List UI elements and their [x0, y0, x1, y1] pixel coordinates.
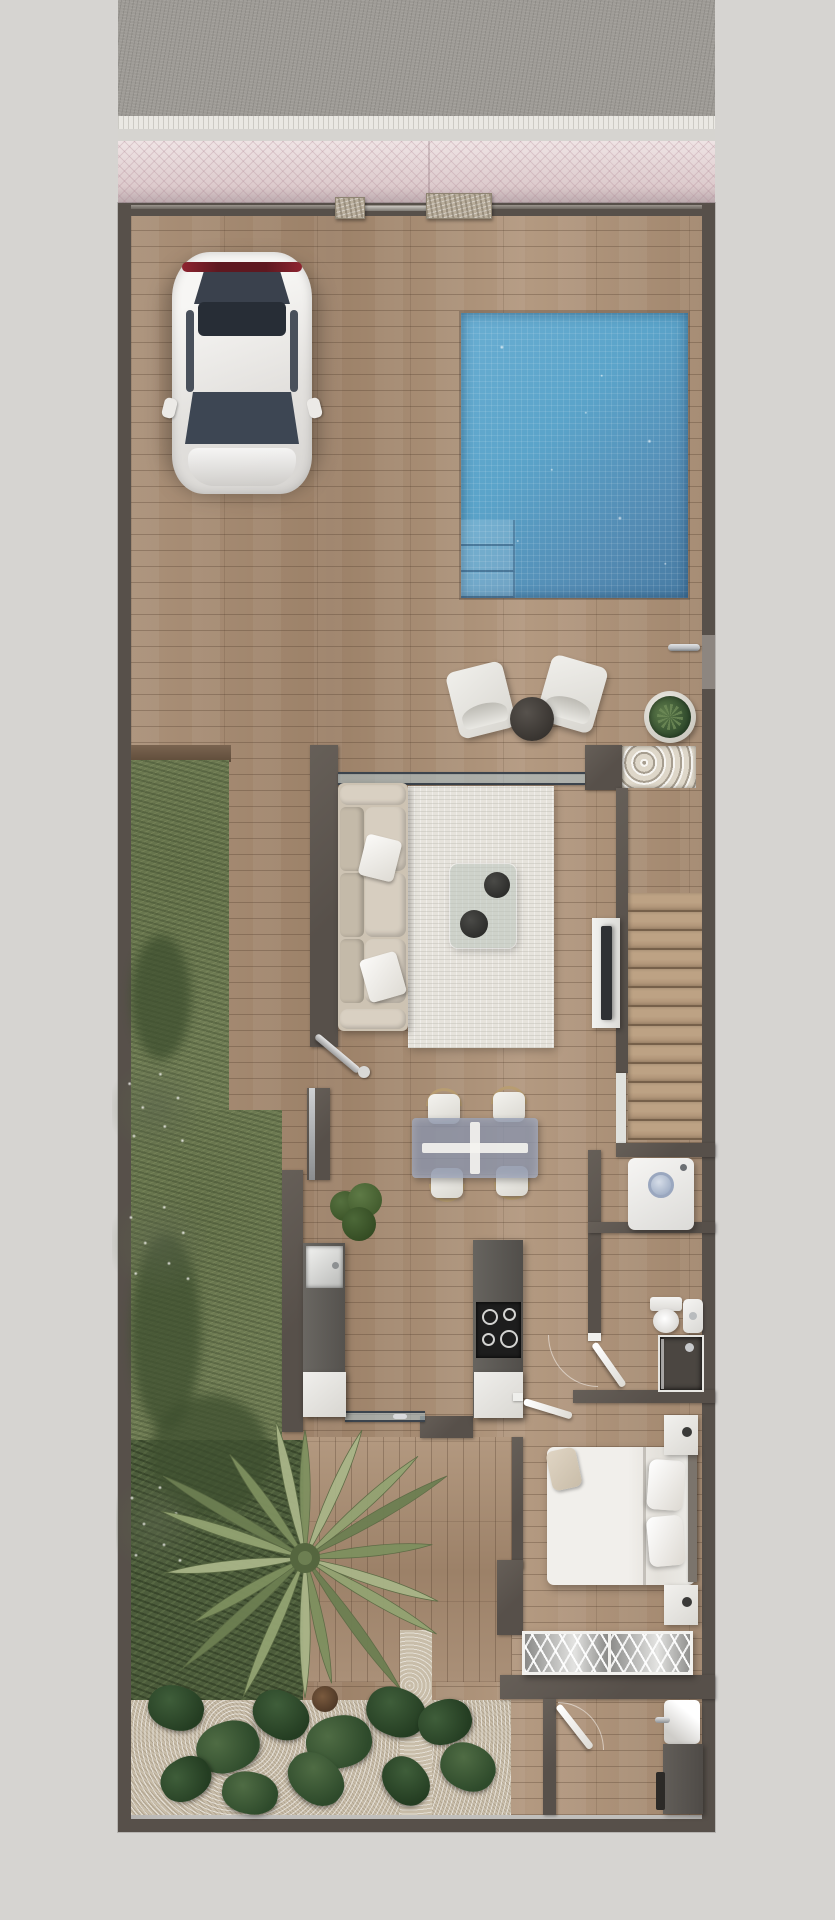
plant-foliage — [342, 1207, 376, 1241]
floor-lamp-base — [358, 1066, 370, 1078]
stair-tread — [628, 1121, 702, 1140]
stair-tread — [628, 1102, 702, 1121]
bed-cushion — [545, 1446, 583, 1491]
toilet-bowl — [653, 1309, 679, 1333]
wall-under-stairs — [616, 1143, 715, 1157]
bed-pillow — [646, 1515, 686, 1568]
cooktop — [476, 1302, 521, 1358]
stair-tread — [628, 988, 702, 1007]
kitchen-partition-wall — [307, 1088, 330, 1180]
stair-tread — [628, 1064, 702, 1083]
car-side-window — [186, 310, 194, 392]
pink-paving — [118, 141, 715, 205]
pebble-bed — [622, 746, 696, 788]
washer-dial — [680, 1164, 687, 1171]
floor-plan-render — [0, 0, 835, 1920]
sofa-seat-cushion — [365, 873, 406, 937]
hallway-wall — [588, 1150, 601, 1335]
stone-pillar — [426, 193, 492, 219]
kitchen-sink — [306, 1246, 343, 1288]
asphalt-road — [118, 0, 715, 116]
stair-tread — [628, 931, 702, 950]
entrance-gate — [365, 206, 426, 211]
washroom-bin — [656, 1772, 665, 1810]
grass-strip — [131, 760, 229, 1110]
nightstand — [664, 1585, 698, 1625]
pool-step — [461, 546, 515, 572]
washroom-sink — [664, 1700, 700, 1744]
street-curb — [118, 116, 715, 129]
shower — [658, 1335, 704, 1392]
dining-table — [412, 1118, 538, 1178]
burner — [482, 1333, 495, 1346]
stair-tread — [628, 1007, 702, 1026]
living-room-west-wall — [310, 745, 338, 1047]
washroom-counter — [663, 1744, 703, 1814]
washing-machine — [628, 1158, 694, 1230]
decor-bowl — [484, 872, 510, 898]
burner — [503, 1308, 516, 1321]
entry-wall — [585, 745, 622, 790]
decor-bowl — [460, 910, 488, 938]
car-hood — [188, 448, 296, 486]
stair-tread — [628, 912, 702, 931]
nightstand — [664, 1415, 698, 1455]
palm-tree — [140, 1390, 470, 1720]
potted-plant — [644, 691, 696, 743]
concrete-strip — [118, 129, 715, 141]
car-rear-window — [194, 272, 290, 304]
stair-tread — [628, 893, 702, 912]
sofa-armrest — [340, 785, 406, 805]
bed-headboard — [688, 1450, 697, 1582]
bush — [131, 935, 191, 1060]
plant-stem — [312, 1686, 338, 1712]
burner — [482, 1309, 498, 1325]
car-side-window — [290, 310, 298, 392]
stair-tread — [628, 1045, 702, 1064]
sofa-backrest — [340, 939, 364, 1003]
duvet-fold — [643, 1447, 646, 1585]
flower-cluster — [112, 1192, 207, 1294]
bedroom-west-wall-return — [497, 1560, 523, 1635]
stair-tread — [628, 1026, 702, 1045]
side-gate-handle — [668, 644, 700, 651]
outdoor-side-table — [510, 697, 554, 741]
flower-cluster — [112, 1060, 200, 1155]
stair-railing — [616, 1073, 626, 1145]
stair-tread — [628, 969, 702, 988]
washer-door — [648, 1172, 674, 1198]
car-taillight-strip — [182, 262, 302, 272]
burner — [500, 1330, 518, 1348]
plant-foliage — [649, 696, 691, 738]
bathroom-sink — [683, 1299, 703, 1333]
pool-step — [461, 520, 515, 546]
bed-pillow — [646, 1459, 685, 1511]
side-gate — [702, 635, 715, 689]
car-windshield — [185, 392, 299, 444]
bedroom-west-wall — [512, 1437, 523, 1569]
sofa — [338, 783, 408, 1031]
washroom-faucet — [655, 1717, 670, 1723]
washroom-wall — [543, 1699, 556, 1815]
car-sunroof — [198, 302, 286, 336]
table-base-beam — [470, 1122, 480, 1174]
parked-car — [172, 252, 312, 494]
stair-tread — [628, 950, 702, 969]
stair-tread — [628, 1083, 702, 1102]
kitchen-plant — [330, 1183, 384, 1243]
tv — [601, 926, 612, 1020]
pool-step — [461, 572, 515, 598]
stone-pillar — [335, 197, 365, 219]
wardrobe-wall — [500, 1675, 715, 1699]
wardrobe — [522, 1631, 693, 1675]
door-jamb — [513, 1393, 523, 1401]
sofa-armrest — [340, 1009, 406, 1029]
sofa-backrest — [340, 873, 364, 937]
